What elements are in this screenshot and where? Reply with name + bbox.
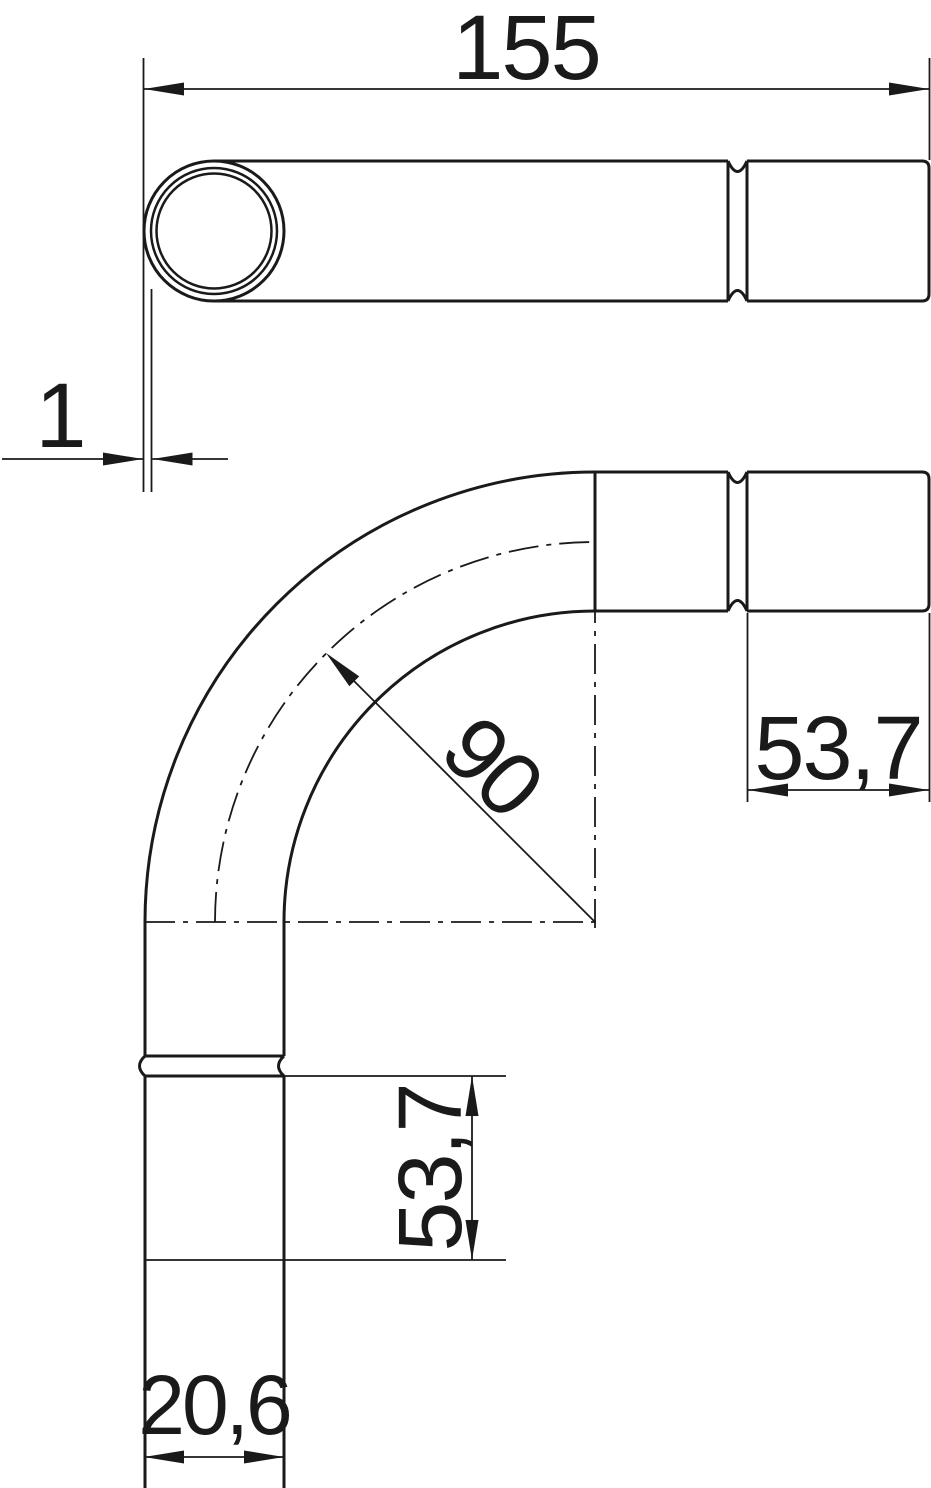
- arm-right-groove-bottom-arc: [728, 601, 747, 612]
- dimension-label-90: 90: [423, 698, 562, 837]
- dimension-socket-bottom: 53,7: [145, 1076, 506, 1260]
- pipe-end-middle-circle: [151, 168, 277, 294]
- dimension-wall-thickness: 1: [2, 289, 228, 492]
- arrowhead-right: [244, 1451, 284, 1464]
- arm-right-groove-top-arc: [728, 472, 747, 483]
- groove-top-arc: [728, 161, 747, 172]
- arm-bottom-groove-right-arc: [279, 1056, 285, 1076]
- arrowhead-left: [103, 453, 143, 466]
- drawing-root: 155 1: [2, 0, 930, 1488]
- dimension-label-155: 155: [452, 0, 600, 99]
- dimension-bend-radius: 90: [326, 653, 595, 922]
- arrowhead-radius: [326, 653, 359, 686]
- arrowhead-right: [889, 83, 929, 96]
- arrowhead-right: [153, 453, 193, 466]
- pipe-end-inner-circle: [157, 174, 272, 289]
- dimension-label-53-7-right: 53,7: [754, 699, 921, 799]
- dimension-outer-diameter: 20,6: [138, 1358, 290, 1464]
- dimension-label-53-7-bottom: 53,7: [381, 1084, 481, 1251]
- side-view-straight-pipe: [144, 161, 929, 301]
- pipe-end-outer-circle: [144, 161, 284, 301]
- arrowhead-left: [144, 1451, 184, 1464]
- technical-drawing-page: 155 1: [0, 0, 931, 1488]
- socket-outline: [747, 161, 929, 301]
- arm-bottom-groove-left-arc: [140, 1056, 146, 1076]
- dimension-socket-right: 53,7: [748, 613, 930, 802]
- dimension-label-20-6: 20,6: [138, 1358, 290, 1452]
- arrowhead-left: [144, 83, 184, 96]
- bend-view-90-degree-elbow: [140, 472, 930, 1488]
- dimension-overall-length: 155: [144, 0, 930, 492]
- dimension-label-1: 1: [35, 365, 84, 467]
- arm-right-socket-outline: [747, 472, 929, 611]
- pipe-bend-technical-drawing: 155 1: [0, 0, 931, 1488]
- groove-bottom-arc: [728, 291, 747, 302]
